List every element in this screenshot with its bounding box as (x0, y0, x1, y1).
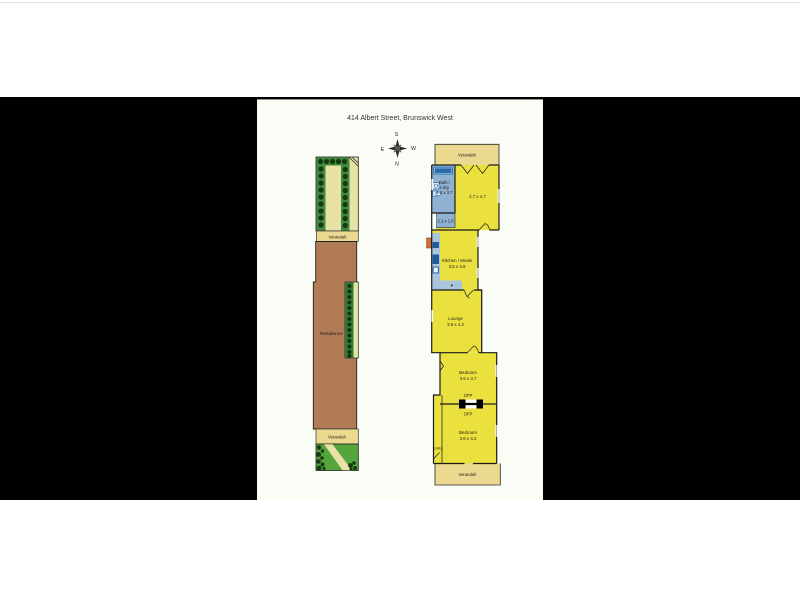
compass-e: E (381, 147, 385, 153)
plan-drawing: 414 Albert Street, Brunswick West S E W … (257, 97, 543, 500)
fp-verandah-top-label: Verandah (458, 152, 477, 157)
kitchen-label: Kitchen / Meals (442, 258, 473, 263)
ofp-label-bottom: OFP (464, 412, 473, 417)
appliance-icon (433, 242, 439, 248)
floor-plan: Verandah (427, 144, 501, 485)
compass-n: N (395, 162, 399, 168)
sink-basin (434, 268, 438, 273)
site-verandah-top-label: Verandah (329, 234, 348, 239)
hall-dims: 2.1 x 1.0 (437, 219, 454, 224)
site-verandah-bottom-label: Verandah (328, 435, 347, 440)
kitchen-dims: 3.5 x 4.9 (449, 264, 466, 269)
frame-edge (257, 97, 543, 99)
fireplace-notch-top (466, 400, 477, 403)
ofp-label-top: OFP (464, 393, 473, 398)
bath-dims: 1.6 x 3.7 (436, 190, 453, 195)
rear-room-dims: 2.7 x 4.7 (469, 194, 486, 199)
compass-w: W (411, 146, 416, 152)
site-plan: Verandah Residence Verandah (313, 157, 358, 471)
floorplan-page: 414 Albert Street, Brunswick West S E W … (0, 0, 800, 600)
bedroom2-label: Bedroom (459, 430, 477, 435)
bedroom1-label: Bedroom (459, 370, 477, 375)
lounge-label: Lounge (448, 316, 463, 321)
fp-outside-notch (429, 213, 436, 230)
stove-icon (433, 255, 439, 265)
hot-water-unit-icon (427, 238, 432, 248)
entry-label: Entry (433, 447, 442, 451)
lounge-dims: 3.5 x 4.2 (447, 322, 464, 327)
site-residence-label: Residence (320, 331, 343, 337)
plan-content-area: 414 Albert Street, Brunswick West S E W … (257, 97, 543, 500)
kitchen-bench-bottom (432, 281, 462, 291)
compass-s: S (395, 132, 399, 138)
page-title: 414 Albert Street, Brunswick West (347, 115, 453, 122)
top-hairline (0, 2, 800, 3)
fireplace-notch-bottom (466, 405, 477, 408)
bedroom1-dims: 3.6 x 3.7 (460, 376, 477, 381)
bedroom2-dims: 3.6 x 4.3 (460, 436, 477, 441)
fp-verandah-bottom-label: Verandah (459, 472, 478, 477)
compass-rose: S E W N (381, 132, 416, 168)
fp-entry (434, 395, 443, 464)
